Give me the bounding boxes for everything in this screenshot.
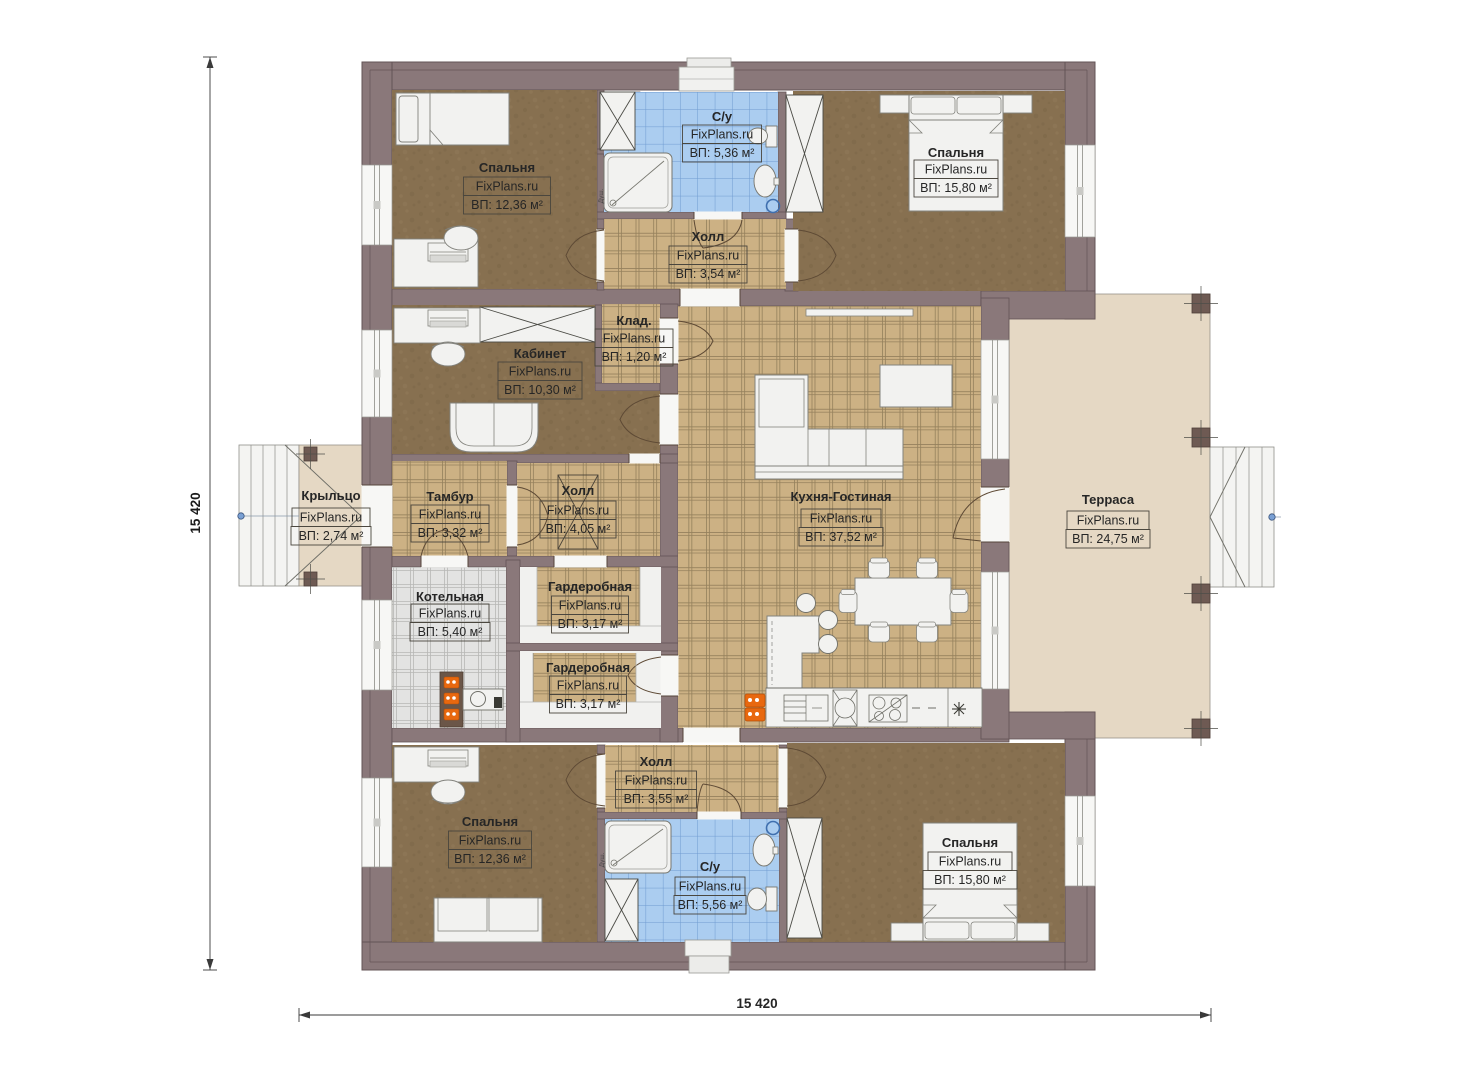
svg-text:FixPlans.ru: FixPlans.ru [459,834,522,848]
svg-text:Гардеробная: Гардеробная [546,660,630,675]
svg-text:ВП: 3,17 м²: ВП: 3,17 м² [556,697,621,711]
svg-text:ВП: 24,75 м²: ВП: 24,75 м² [1072,532,1144,546]
svg-text:Холл: Холл [640,754,673,769]
svg-text:FixPlans.ru: FixPlans.ru [419,508,482,522]
svg-text:FixPlans.ru: FixPlans.ru [509,365,572,379]
svg-text:ВП: 3,54 м²: ВП: 3,54 м² [676,267,741,281]
svg-text:Кабинет: Кабинет [514,346,567,361]
svg-text:ВП: 3,17 м²: ВП: 3,17 м² [558,617,623,631]
svg-text:FixPlans.ru: FixPlans.ru [557,679,620,693]
svg-text:FixPlans.ru: FixPlans.ru [677,249,740,263]
svg-text:FixPlans.ru: FixPlans.ru [939,855,1002,869]
svg-text:ВП: 3,32 м²: ВП: 3,32 м² [418,526,483,540]
svg-text:FixPlans.ru: FixPlans.ru [691,128,754,142]
svg-text:FixPlans.ru: FixPlans.ru [419,607,482,621]
svg-text:ВП: 5,56 м²: ВП: 5,56 м² [678,898,743,912]
svg-text:Холл: Холл [562,483,595,498]
svg-text:ВП: 5,36 м²: ВП: 5,36 м² [690,146,755,160]
svg-text:FixPlans.ru: FixPlans.ru [679,880,742,894]
svg-text:Спальня: Спальня [928,145,984,160]
svg-text:ВП: 3,55 м²: ВП: 3,55 м² [624,792,689,806]
svg-text:Крыльцо: Крыльцо [301,488,360,503]
svg-text:ВП: 2,74 м²: ВП: 2,74 м² [299,529,364,543]
svg-text:FixPlans.ru: FixPlans.ru [300,511,363,525]
svg-text:Терраса: Терраса [1082,492,1135,507]
svg-text:Душ.: Душ. [599,852,606,867]
svg-text:15 420: 15 420 [736,996,777,1011]
svg-text:15 420: 15 420 [188,492,203,533]
svg-text:ВП: 15,80 м²: ВП: 15,80 м² [934,873,1006,887]
svg-text:ВП: 10,30 м²: ВП: 10,30 м² [504,383,576,397]
svg-text:FixPlans.ru: FixPlans.ru [547,504,610,518]
svg-text:FixPlans.ru: FixPlans.ru [1077,514,1140,528]
svg-text:Клад.: Клад. [616,313,651,328]
svg-text:С/у: С/у [700,859,721,874]
svg-text:Спальня: Спальня [462,814,518,829]
svg-text:FixPlans.ru: FixPlans.ru [476,180,539,194]
svg-text:FixPlans.ru: FixPlans.ru [559,599,622,613]
svg-text:ВП: 12,36 м²: ВП: 12,36 м² [454,852,526,866]
svg-text:Котельная: Котельная [416,589,484,604]
svg-text:Кухня-Гостиная: Кухня-Гостиная [790,489,891,504]
svg-text:ВП: 37,52 м²: ВП: 37,52 м² [805,530,877,544]
svg-text:Спальня: Спальня [479,160,535,175]
svg-text:Душ.: Душ. [598,188,605,203]
svg-text:ВП: 12,36 м²: ВП: 12,36 м² [471,198,543,212]
svg-text:FixPlans.ru: FixPlans.ru [625,774,688,788]
svg-text:ВП: 15,80 м²: ВП: 15,80 м² [920,181,992,195]
svg-text:ВП: 1,20 м²: ВП: 1,20 м² [602,350,667,364]
svg-text:FixPlans.ru: FixPlans.ru [810,512,873,526]
svg-text:ВП: 4,05 м²: ВП: 4,05 м² [546,522,611,536]
svg-text:Гардеробная: Гардеробная [548,579,632,594]
svg-text:FixPlans.ru: FixPlans.ru [603,332,666,346]
svg-text:FixPlans.ru: FixPlans.ru [925,163,988,177]
svg-text:С/у: С/у [712,109,733,124]
svg-text:Тамбур: Тамбур [426,489,473,504]
svg-text:Спальня: Спальня [942,835,998,850]
svg-text:Холл: Холл [692,229,725,244]
svg-text:ВП: 5,40 м²: ВП: 5,40 м² [418,625,483,639]
